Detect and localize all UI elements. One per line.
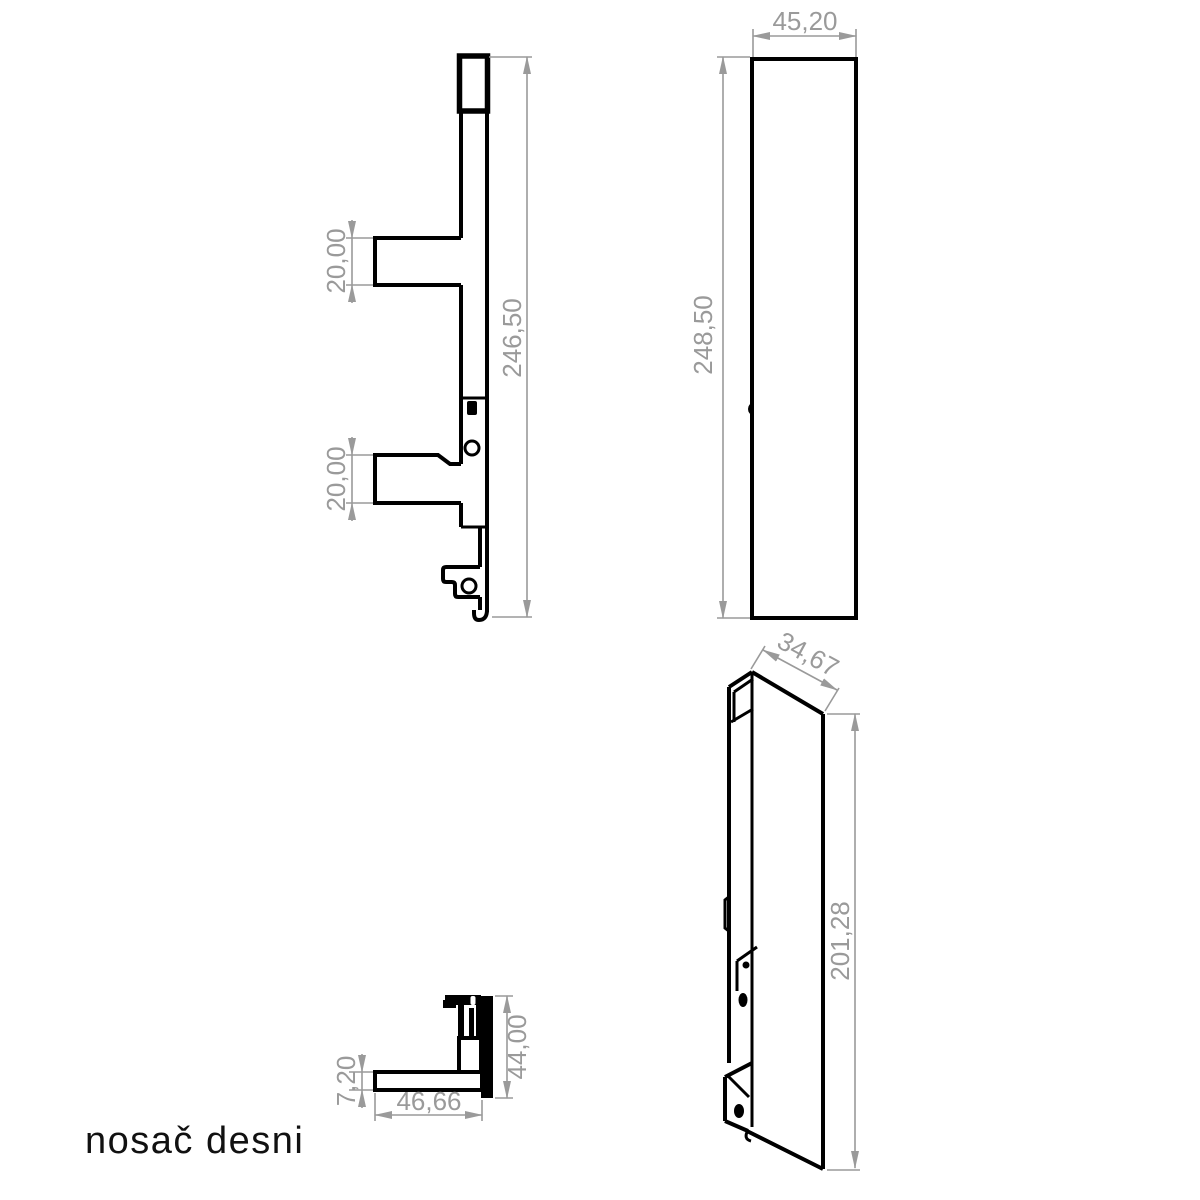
top-channel bbox=[459, 1038, 481, 1072]
side-hole-upper bbox=[465, 441, 479, 455]
front-extension-lines bbox=[717, 29, 856, 618]
dim-pin-bottom: 20,00 bbox=[321, 446, 351, 511]
iso-hole-foot bbox=[734, 1104, 744, 1118]
iso-rivet bbox=[743, 962, 750, 969]
top-profile-wall bbox=[458, 1003, 464, 1039]
iso-foot-edge bbox=[727, 1075, 749, 1097]
top-profile-notch bbox=[471, 996, 476, 1005]
dim-front-width: 45,20 bbox=[772, 6, 837, 36]
cad-drawing: 20,00 20,00 246,50 45,20 248,50 44,00 7,… bbox=[0, 0, 1200, 1200]
iso-bracket-edges bbox=[737, 947, 757, 991]
top-view: 44,00 7,20 46,66 bbox=[331, 995, 532, 1121]
side-bottom-hook bbox=[474, 610, 487, 620]
dim-front-height: 248,50 bbox=[688, 295, 718, 375]
front-plate bbox=[752, 59, 856, 618]
top-profile-stub bbox=[443, 1000, 456, 1008]
top-profile-wall bbox=[476, 1005, 482, 1039]
dim-top-width: 46,66 bbox=[396, 1086, 461, 1116]
side-hole-foot bbox=[462, 579, 476, 593]
side-pin-bottom bbox=[375, 455, 461, 503]
front-edge-bump bbox=[748, 403, 753, 415]
dim-pin-top: 20,00 bbox=[321, 228, 351, 293]
dim-top-height: 44,00 bbox=[502, 1014, 532, 1079]
side-pin-top bbox=[375, 238, 461, 285]
side-view: 20,00 20,00 246,50 bbox=[321, 56, 532, 620]
drawing-sheet: 20,00 20,00 246,50 45,20 248,50 44,00 7,… bbox=[0, 0, 1200, 1200]
dim-iso-height: 201,28 bbox=[825, 901, 855, 981]
iso-outline bbox=[729, 672, 823, 1169]
side-slot bbox=[467, 401, 477, 415]
top-profile-wall bbox=[469, 1008, 474, 1039]
iso-hole-upper bbox=[739, 993, 748, 1007]
isometric-view: 34,67 201,28 bbox=[725, 625, 860, 1170]
dim-side-length: 246,50 bbox=[497, 298, 527, 378]
side-top-tab bbox=[460, 56, 488, 111]
side-plate-inner-lines bbox=[461, 111, 487, 527]
dim-top-thickness: 7,20 bbox=[331, 1056, 361, 1107]
drawing-title: nosač desni bbox=[85, 1120, 304, 1162]
front-view: 45,20 248,50 bbox=[688, 6, 856, 618]
